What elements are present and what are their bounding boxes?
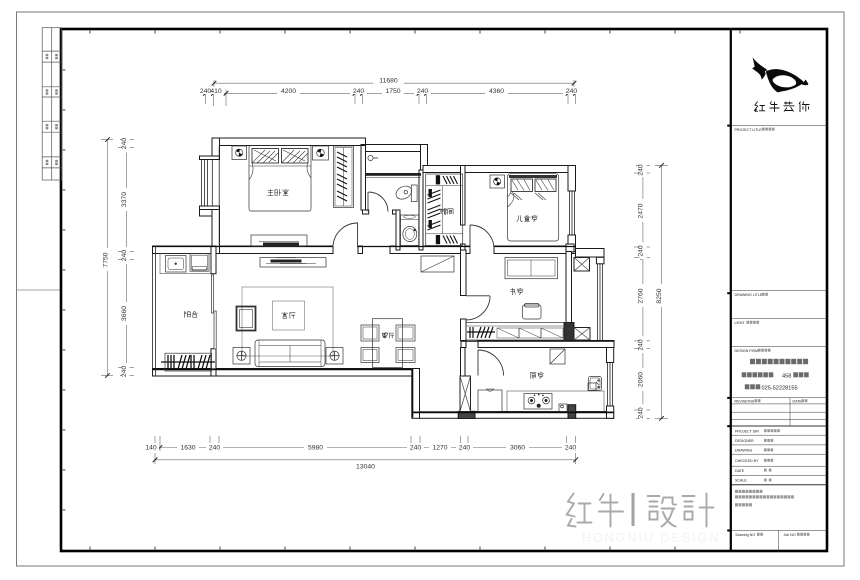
svg-text:240: 240 [410,445,422,452]
svg-text:240: 240 [638,339,645,351]
svg-text:1270: 1270 [432,445,447,452]
svg-text:DESIGN FIRM: DESIGN FIRM [735,349,759,353]
svg-text:025-52228155: 025-52228155 [762,385,798,391]
svg-text:3660: 3660 [121,306,128,321]
svg-text:3370: 3370 [121,192,128,207]
svg-text:1750: 1750 [385,88,400,95]
svg-text:PROJECT DIR: PROJECT DIR [735,429,759,433]
svg-text:Drawing NO: Drawing NO [736,533,756,537]
svg-text:2760: 2760 [638,288,645,303]
svg-text:LIENT: LIENT [735,321,746,325]
svg-text:2470: 2470 [638,203,645,218]
svg-text:DATE: DATE [793,399,803,403]
svg-text:4360: 4360 [489,88,504,95]
svg-text:PROJECT LITLE: PROJECT LITLE [735,128,763,132]
svg-text:3060: 3060 [510,445,525,452]
svg-text:410: 410 [210,88,222,95]
svg-text:DATE: DATE [735,469,745,473]
svg-text:11680: 11680 [379,78,398,85]
svg-text:4200: 4200 [281,88,296,95]
svg-text:240: 240 [638,164,645,176]
svg-text:240: 240 [353,88,365,95]
svg-text:240: 240 [209,445,221,452]
svg-text:13040: 13040 [356,463,375,470]
svg-text:240: 240 [566,88,578,95]
svg-text:HONGNIU DESIGN: HONGNIU DESIGN [582,531,720,545]
svg-text:5980: 5980 [308,445,323,452]
svg-text:CHECKED BY: CHECKED BY [735,459,759,463]
svg-text:240: 240 [638,407,645,419]
svg-text:REVISIONS: REVISIONS [735,399,755,403]
svg-text:SCALE: SCALE [735,479,747,483]
svg-text:DRAWING LITLE: DRAWING LITLE [735,293,763,297]
svg-text:240: 240 [121,366,128,378]
svg-text:458: 458 [782,373,791,379]
svg-text:DRAWING: DRAWING [735,449,752,453]
svg-text:140: 140 [145,445,157,452]
svg-text:240: 240 [121,250,128,262]
svg-text:240: 240 [565,445,577,452]
svg-text:240: 240 [121,138,128,150]
svg-text:8250: 8250 [656,288,663,303]
svg-text:240: 240 [417,88,429,95]
svg-text:2060: 2060 [638,372,645,387]
svg-text:Job NO: Job NO [784,533,796,537]
svg-text:7750: 7750 [102,252,109,267]
svg-text:1630: 1630 [180,445,195,452]
svg-text:240: 240 [459,445,471,452]
svg-text:DESIGNER: DESIGNER [735,439,754,443]
svg-text:240: 240 [638,245,645,257]
